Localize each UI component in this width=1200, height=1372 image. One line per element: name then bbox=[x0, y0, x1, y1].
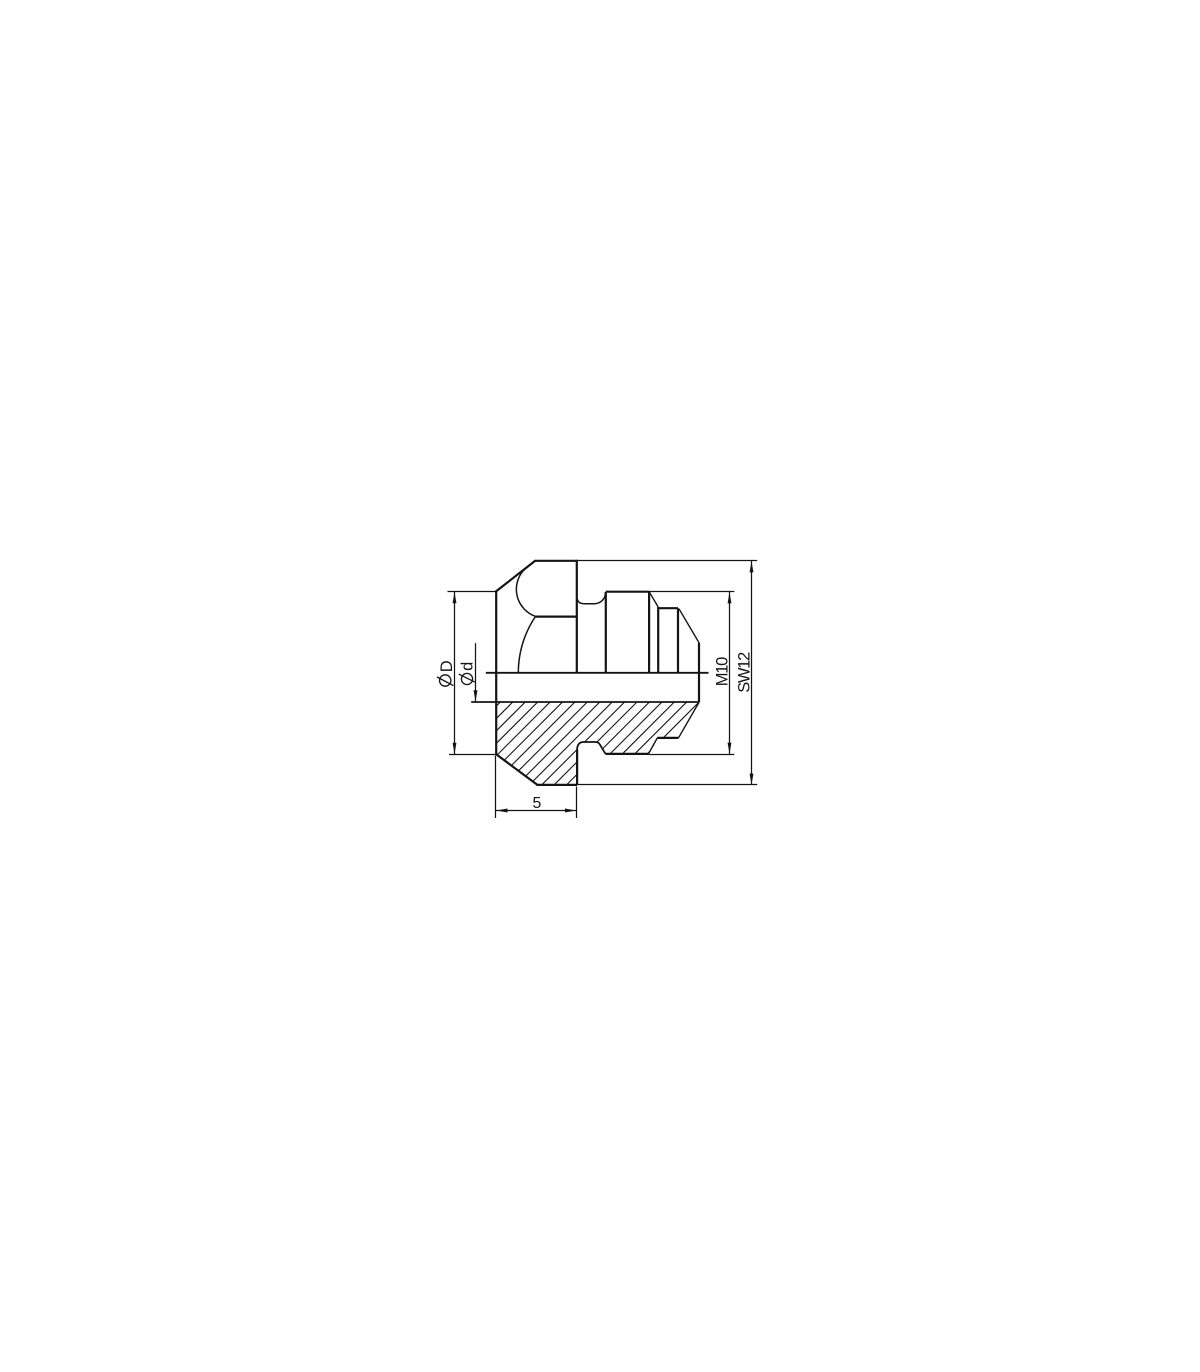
svg-text:5: 5 bbox=[533, 795, 542, 812]
svg-text:SW12: SW12 bbox=[736, 652, 754, 693]
svg-text:M10: M10 bbox=[714, 657, 732, 686]
svg-text:d: d bbox=[459, 662, 477, 671]
svg-text:D: D bbox=[438, 660, 456, 672]
